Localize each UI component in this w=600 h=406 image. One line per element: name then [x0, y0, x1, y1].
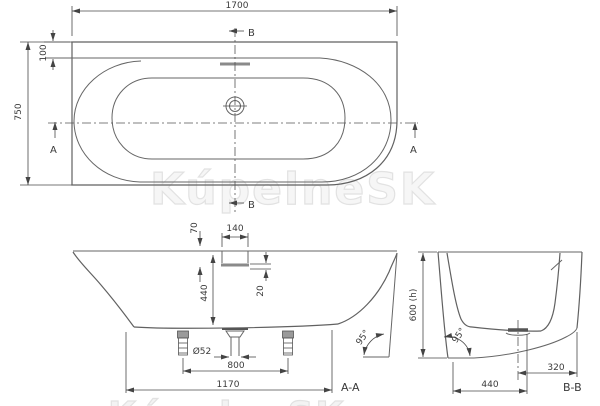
- section-aa-view: 95° 70 140: [73, 222, 397, 394]
- underside: [474, 328, 577, 358]
- dim-1700-text: 1700: [226, 1, 249, 11]
- section-marker-b-bottom: B: [229, 200, 255, 211]
- front-inner-wall: [447, 253, 472, 327]
- dim-800: 800: [183, 358, 288, 374]
- section-marker-a-right: A: [410, 122, 417, 156]
- dim-750-text: 750: [14, 103, 24, 120]
- adjustable-foot-right: [283, 331, 294, 355]
- ext-line: [250, 264, 271, 269]
- right-inner-wall: [338, 253, 397, 324]
- foot-stem: [178, 331, 189, 338]
- dim-440-text: 440: [200, 284, 210, 301]
- dim-440-depth: 440: [200, 255, 213, 325]
- overflow-tick: [551, 260, 562, 270]
- drain-waste-aa: [222, 329, 248, 356]
- dim-100-text: 100: [39, 44, 49, 61]
- plan-view: 1700 100 750 B B: [14, 1, 418, 212]
- dim-20-text: 20: [256, 285, 266, 297]
- drawing-svg: 1700 100 750 B B: [0, 0, 600, 406]
- section-bb-view: 95° 600 (h) 320 440 B-B: [409, 252, 582, 394]
- section-marker-a-left: A: [50, 122, 57, 156]
- front-outer-face: [438, 252, 448, 358]
- section-b-label: B: [248, 28, 255, 39]
- dim-600: 600 (h): [409, 252, 447, 358]
- overflow-detail: [221, 251, 249, 265]
- rim-contour: [74, 58, 391, 182]
- foot-threads: [284, 343, 293, 353]
- dim-440-base-text: 440: [481, 380, 498, 390]
- section-aa-label: A-A: [341, 381, 360, 394]
- drain-body: [226, 331, 244, 337]
- ext-line: [222, 233, 248, 247]
- inner-bowl-contour: [112, 78, 345, 159]
- dim-drain-diameter: Ø52: [193, 346, 256, 357]
- dim-140: 140: [222, 224, 248, 247]
- dim-70: 70: [190, 222, 200, 282]
- foot-stem: [283, 331, 294, 338]
- foot-body: [179, 338, 188, 355]
- section-marker-b-top: B: [229, 28, 255, 39]
- section-a-label: A: [50, 145, 57, 156]
- dim-750: 750: [14, 42, 72, 185]
- angle-95-text: 95°: [355, 328, 372, 347]
- left-profile: [73, 252, 134, 327]
- dim-100: 100: [39, 30, 70, 70]
- dim-140-text: 140: [226, 224, 243, 234]
- dim-1170-text: 1170: [217, 380, 240, 390]
- angle-95-text: 95°: [451, 326, 468, 345]
- overflow-box: [222, 251, 248, 263]
- section-a-label: A: [410, 145, 417, 156]
- bathtub-technical-drawing: KúpelneSK KúpelneSK: [0, 0, 600, 406]
- back-outer-face: [577, 252, 582, 328]
- drain-pipe: [231, 337, 239, 356]
- dim-o52-text: Ø52: [193, 346, 212, 357]
- dim-70-text: 70: [190, 222, 200, 234]
- adjustable-foot-left: [178, 331, 189, 355]
- angle-95-aa: 95°: [355, 328, 384, 355]
- dim-20: 20: [250, 252, 271, 297]
- bowl-floor: [472, 327, 541, 331]
- section-b-label: B: [248, 200, 255, 211]
- foot-threads: [179, 343, 188, 353]
- section-bb-label: B-B: [563, 381, 582, 394]
- angle-95-bb: 95°: [444, 326, 470, 356]
- foot-body: [284, 338, 293, 355]
- dim-320-text: 320: [547, 363, 564, 373]
- base-line: [134, 324, 338, 328]
- dim-800-text: 800: [227, 361, 244, 371]
- dim-600-text: 600 (h): [409, 289, 419, 322]
